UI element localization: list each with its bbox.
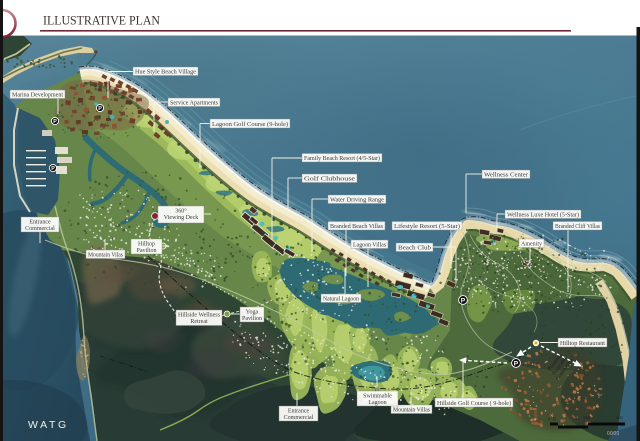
svg-text:Hue Style Beach Village: Hue Style Beach Village: [135, 69, 196, 75]
svg-text:P: P: [98, 106, 102, 112]
svg-text:Entrance: Entrance: [29, 219, 51, 225]
svg-text:Entrance: Entrance: [288, 408, 310, 414]
svg-text:Beach Club: Beach Club: [398, 245, 431, 251]
svg-text:Hilltop: Hilltop: [138, 241, 155, 247]
svg-text:P: P: [514, 360, 519, 367]
svg-text:360°: 360°: [175, 207, 187, 214]
svg-text:Lagoon: Lagoon: [368, 400, 386, 406]
svg-text:Pavilion: Pavilion: [136, 248, 156, 254]
svg-text:Wellness Luxe Hotel (5-Star): Wellness Luxe Hotel (5-Star): [507, 211, 579, 218]
svg-text:Viewing Deck: Viewing Deck: [164, 215, 198, 221]
svg-text:Branded Beach Villas: Branded Beach Villas: [330, 224, 384, 230]
svg-text:100: 100: [583, 415, 590, 420]
svg-text:Hilltop Restaurant: Hilltop Restaurant: [560, 341, 605, 347]
svg-text:Mountain Vilas: Mountain Vilas: [88, 252, 124, 258]
svg-text:Water Driving Range: Water Driving Range: [330, 197, 384, 203]
svg-text:Yoga: Yoga: [246, 309, 259, 315]
svg-text:Wellness Center: Wellness Center: [484, 172, 528, 178]
svg-text:P: P: [51, 166, 55, 172]
svg-text:WATG: WATG: [28, 419, 69, 431]
svg-text:Lagoon Villas: Lagoon Villas: [353, 242, 387, 248]
svg-text:Hillside Wellness: Hillside Wellness: [178, 312, 221, 318]
svg-text:Pavilion: Pavilion: [242, 316, 262, 322]
svg-text:Hillside Golf Course ( 9-hole): Hillside Golf Course ( 9-hole): [437, 400, 511, 407]
svg-text:Branded Cliff Villas: Branded Cliff Villas: [555, 223, 601, 230]
svg-text:Golf Clubhouse: Golf Clubhouse: [304, 175, 355, 182]
svg-text:Family Beach Resort (4/5-Star): Family Beach Resort (4/5-Star): [304, 155, 380, 162]
svg-text:Lagoon Golf Course (9-hole): Lagoon Golf Course (9-hole): [212, 121, 288, 128]
svg-text:Retreat: Retreat: [190, 319, 208, 325]
svg-text:Amenity: Amenity: [521, 241, 542, 247]
svg-text:Service Apartments: Service Apartments: [170, 100, 219, 106]
svg-text:0 50: 0 50: [548, 416, 557, 421]
svg-text:P: P: [461, 297, 466, 304]
svg-text:P: P: [53, 119, 57, 125]
svg-text:200: 200: [616, 415, 623, 420]
svg-text:Swimmable: Swimmable: [363, 393, 392, 399]
svg-text:Marina Development: Marina Development: [12, 92, 63, 98]
svg-text:Mountain Villas: Mountain Villas: [393, 407, 431, 413]
svg-text:Natural Lagoon: Natural Lagoon: [323, 296, 359, 302]
svg-text:Commercial: Commercial: [284, 415, 314, 421]
svg-text:Lifestyle Resort (5-Star): Lifestyle Resort (5-Star): [394, 223, 460, 230]
svg-text:0000: 0000: [607, 431, 620, 437]
svg-text:ILLUSTRATIVE PLAN: ILLUSTRATIVE PLAN: [43, 13, 161, 28]
svg-text:Commercial: Commercial: [25, 226, 55, 232]
